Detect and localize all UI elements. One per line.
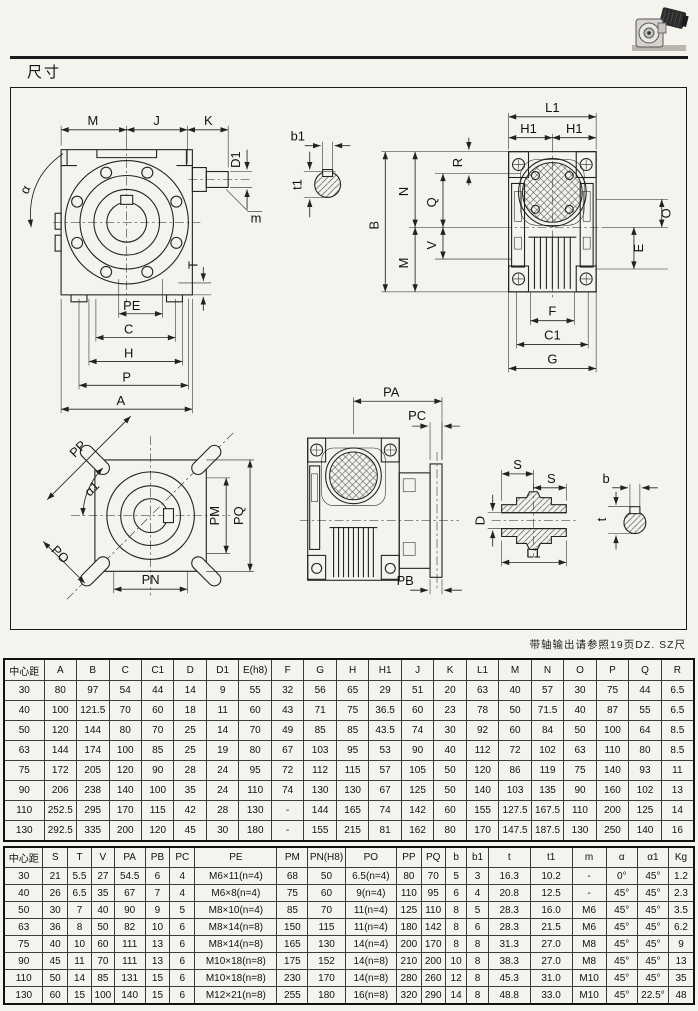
table-cell: 11(n=4) [345, 902, 397, 919]
table-cell: 130 [304, 781, 336, 801]
table-row: 3080975444149553256652951206340573075446… [4, 681, 694, 701]
table-cell: 255 [277, 987, 308, 1005]
table-cell: 130 [308, 936, 345, 953]
table-cell: 140 [596, 761, 628, 781]
table-cell: 14(n=4) [345, 936, 397, 953]
table-cell: 8.5 [661, 721, 694, 741]
table-cell: 81 [369, 821, 401, 842]
table-cell: 11 [67, 953, 91, 970]
row-header-cell: 130 [4, 821, 44, 842]
table-cell: 9 [206, 681, 238, 701]
header-cell: m [572, 847, 606, 868]
table-row: 40100121.5706018116043717536.56023785071… [4, 701, 694, 721]
table-cell: 95 [336, 741, 368, 761]
table-cell: 24 [206, 781, 238, 801]
table-cell: 150 [277, 919, 308, 936]
table-cell: 140 [109, 781, 141, 801]
table-cell: 45° [637, 902, 668, 919]
table-cell: 170 [421, 936, 445, 953]
table-row: 7517220512090282495721121155710550120861… [4, 761, 694, 781]
dim-label-g: G [547, 351, 557, 366]
header-cell: D1 [206, 659, 238, 681]
table-cell: 85 [277, 902, 308, 919]
table-cell: 6 [170, 970, 195, 987]
header-cell: G [304, 659, 336, 681]
table-cell: 44 [629, 681, 661, 701]
table-cell: 142 [421, 919, 445, 936]
table-cell: 75 [277, 885, 308, 902]
table-cell: 16 [661, 821, 694, 842]
table-cell: 36.5 [369, 701, 401, 721]
table-cell: 144 [304, 801, 336, 821]
table-cell: 40 [499, 681, 531, 701]
dim-label-d-bore: D [473, 516, 488, 525]
table-cell: 152 [308, 953, 345, 970]
table-cell: 14 [174, 681, 206, 701]
table-row: 40266.5356774M6×8(n=4)75609(n=4)11095642… [4, 885, 694, 902]
table-cell: 14 [445, 987, 466, 1005]
table-cell: 93 [629, 761, 661, 781]
header-cell: B [77, 659, 109, 681]
header-cell: N [531, 659, 563, 681]
table-cell: 21 [43, 868, 67, 885]
header-cell: H [336, 659, 368, 681]
table-cell: 23 [434, 701, 466, 721]
table-cell: 32 [271, 681, 303, 701]
table-cell: 6.2 [669, 919, 695, 936]
table-cell: 57 [531, 681, 563, 701]
row-header-cell: 90 [4, 781, 44, 801]
table-cell: 90 [114, 902, 145, 919]
table-cell: 292.5 [44, 821, 76, 842]
table-cell: 1.2 [669, 868, 695, 885]
header-cell: PB [145, 847, 169, 868]
table-cell: 42 [174, 801, 206, 821]
table-cell: 86 [499, 761, 531, 781]
page-title: 尺寸 [27, 61, 61, 82]
table-cell: 200 [596, 801, 628, 821]
table-cell: 13 [145, 953, 169, 970]
table-cell: 45° [606, 970, 637, 987]
table-cell: 200 [109, 821, 141, 842]
table-cell: 25 [174, 741, 206, 761]
table-cell: 100 [141, 781, 173, 801]
table-cell: 120 [109, 761, 141, 781]
table-cell: 8 [445, 936, 466, 953]
table-cell: 3 [467, 868, 488, 885]
table-cell: 50 [92, 919, 114, 936]
table-cell: 60 [239, 701, 271, 721]
dim-label-t-key: t [594, 517, 609, 521]
table-cell: 130 [336, 781, 368, 801]
table-cell: 127.5 [499, 801, 531, 821]
table-cell: 95 [239, 761, 271, 781]
table-cell: 74 [369, 801, 401, 821]
table-cell: 180 [397, 919, 421, 936]
table-cell: 43 [271, 701, 303, 721]
reference-note: 带轴输出请参照19页DZ. SZ尺 [530, 637, 686, 652]
table-cell: 120 [466, 761, 498, 781]
table-row: 110501485131156M10×18(n=8)23017014(n=8)2… [4, 970, 694, 987]
header-cell: D [174, 659, 206, 681]
table-cell: 0° [606, 868, 637, 885]
header-cell: PE [195, 847, 277, 868]
table-cell: 60 [499, 721, 531, 741]
table-cell: M6×8(n=4) [195, 885, 277, 902]
table-cell: 54 [109, 681, 141, 701]
table-cell: 121.5 [77, 701, 109, 721]
table-cell: 70 [141, 721, 173, 741]
table-cell: 75 [596, 681, 628, 701]
table-cell: 103 [304, 741, 336, 761]
table-cell: 44 [141, 681, 173, 701]
table-cell: 16(n=8) [345, 987, 397, 1005]
dim-label-h1-left: H1 [520, 121, 537, 136]
dimension-table-2-wrap: 中心距STVPAPBPCPEPMPN(H8)POPPPQbb1tt1mαα1Kg… [3, 846, 695, 1005]
table-cell: 40 [43, 936, 67, 953]
table-cell: 115 [141, 801, 173, 821]
table-cell: 10 [145, 919, 169, 936]
table-cell: M6 [572, 902, 606, 919]
table-cell: 24 [206, 761, 238, 781]
table-cell: 335 [77, 821, 109, 842]
dim-label-c1: C1 [544, 328, 561, 343]
table-cell: 70 [92, 953, 114, 970]
table-cell: 110 [239, 781, 271, 801]
table-cell: 5.5 [67, 868, 91, 885]
input-key-detail: b1 t1 [290, 129, 351, 218]
table-cell: 13 [661, 781, 694, 801]
table-cell: 28 [174, 761, 206, 781]
header-cell: PO [345, 847, 397, 868]
table-cell: 80 [434, 821, 466, 842]
table-cell: 45° [637, 953, 668, 970]
row-header-cell: 75 [4, 936, 43, 953]
dim-label-n: N [396, 187, 411, 196]
dim-label-r: R [450, 158, 465, 167]
table-cell: 14 [67, 970, 91, 987]
table-cell: 6 [445, 885, 466, 902]
table-cell: 80 [44, 681, 76, 701]
dim-label-pq: PQ [231, 506, 246, 525]
key-section-detail: b t [594, 471, 658, 550]
table-cell: 64 [629, 721, 661, 741]
table-cell: 250 [596, 821, 628, 842]
row-header-cell: 50 [4, 902, 43, 919]
table-cell: 320 [397, 987, 421, 1005]
table-cell: 90 [141, 761, 173, 781]
table-cell: 100 [92, 987, 114, 1005]
table-cell: 50 [564, 721, 596, 741]
table-cell: 9 [145, 902, 169, 919]
table-cell: 70 [239, 721, 271, 741]
table-cell: 45° [606, 885, 637, 902]
table-cell: 80 [397, 868, 421, 885]
table-cell: 238 [77, 781, 109, 801]
row-header-cell: 30 [4, 681, 44, 701]
table-cell: 144 [44, 741, 76, 761]
table-cell: 45 [43, 953, 67, 970]
dim-label-alpha: α [17, 182, 34, 196]
table-cell: 54.5 [114, 868, 145, 885]
table-row: 30215.52754.564M6×11(n=4)68506.5(n=4)807… [4, 868, 694, 885]
dim-label-k: K [204, 113, 213, 128]
table-cell: 95 [421, 885, 445, 902]
table-cell: 13 [145, 936, 169, 953]
table-cell: 35 [92, 885, 114, 902]
drawing-panel: M J K D1 m α T PE C H P A b1 t1 [10, 87, 687, 630]
table-cell: 12.5 [530, 885, 572, 902]
table-cell: 170 [109, 801, 141, 821]
header-cell: C [109, 659, 141, 681]
dim-label-h1-right: H1 [566, 121, 583, 136]
table-cell: 10 [445, 953, 466, 970]
table-cell: 45° [637, 868, 668, 885]
dim-label-v: V [424, 240, 439, 249]
header-cell: F [271, 659, 303, 681]
dim-label-pb: PB [397, 573, 414, 588]
table-cell: 100 [109, 741, 141, 761]
table-cell: 75 [564, 761, 596, 781]
table-cell: 119 [531, 761, 563, 781]
dim-label-t1: t1 [290, 179, 305, 190]
row-header-cell: 30 [4, 868, 43, 885]
table-cell: 10 [67, 936, 91, 953]
table-cell: 200 [421, 953, 445, 970]
table-cell: 140 [114, 987, 145, 1005]
dim-label-t-foot: T [185, 261, 200, 269]
table-cell: 67 [369, 781, 401, 801]
table-cell: 7 [67, 902, 91, 919]
table-cell: 36 [43, 919, 67, 936]
table-cell: 45° [606, 902, 637, 919]
dim-label-p: P [122, 369, 131, 384]
table-cell: M8 [572, 953, 606, 970]
row-header-cell: 40 [4, 885, 43, 902]
front-view: M J K D1 m α T PE C H P A [17, 113, 262, 413]
header-cell: A [44, 659, 76, 681]
table-cell: 6 [170, 919, 195, 936]
table-cell: 60 [92, 936, 114, 953]
dim-label-pa: PA [383, 384, 400, 399]
dim-label-m-thread: m [251, 210, 262, 225]
table-cell: 45° [606, 936, 637, 953]
table-row: 75401060111136M8×14(n=8)16513014(n=4)200… [4, 936, 694, 953]
header-cell: P [596, 659, 628, 681]
table-cell: 110 [564, 801, 596, 821]
table-cell: 7 [145, 885, 169, 902]
table-cell: 60 [141, 701, 173, 721]
table-cell: 50 [499, 701, 531, 721]
row-header-cell: 50 [4, 721, 44, 741]
table-cell: 100 [44, 701, 76, 721]
table-cell: 206 [44, 781, 76, 801]
table-cell: M10 [572, 970, 606, 987]
table-cell: 111 [114, 953, 145, 970]
table-cell: 50 [434, 781, 466, 801]
table-cell: 87 [596, 701, 628, 721]
table-cell: 14(n=8) [345, 970, 397, 987]
header-cell: 中心距 [4, 659, 44, 681]
table-cell: 35 [669, 970, 695, 987]
header-cell: b [445, 847, 466, 868]
row-header-cell: 110 [4, 801, 44, 821]
table-cell: M8×10(n=4) [195, 902, 277, 919]
catalog-page: { "header": { "section_title": "尺寸" }, "… [0, 0, 698, 1011]
table-cell: 55 [629, 701, 661, 721]
header-cell: L1 [466, 659, 498, 681]
table-cell: 8.5 [661, 741, 694, 761]
table-cell: 28 [206, 801, 238, 821]
dim-label-po: PO [48, 542, 72, 566]
table-cell: 67 [271, 741, 303, 761]
table-cell: 15 [67, 987, 91, 1005]
table-cell: 290 [421, 987, 445, 1005]
table-cell: 167.5 [531, 801, 563, 821]
table-cell: - [572, 868, 606, 885]
dim-label-j: J [153, 113, 159, 128]
table-cell: 165 [336, 801, 368, 821]
header-cell: α1 [637, 847, 668, 868]
table-cell: 16.0 [530, 902, 572, 919]
table-cell: 180 [308, 987, 345, 1005]
table-cell: M6×11(n=4) [195, 868, 277, 885]
dim-label-h: H [124, 346, 133, 361]
dim-label-c: C [124, 322, 133, 337]
technical-drawing: M J K D1 m α T PE C H P A b1 t1 [11, 88, 686, 629]
table-cell: 45° [606, 953, 637, 970]
table-cell: 115 [336, 761, 368, 781]
header-cell: PC [170, 847, 195, 868]
table-cell: 2.3 [669, 885, 695, 902]
table-cell: 5 [467, 902, 488, 919]
dim-label-l1-shaft: L1 [526, 545, 540, 560]
table-cell: 102 [629, 781, 661, 801]
header-cell: K [434, 659, 466, 681]
table-row: 6314417410085251980671039553904011272102… [4, 741, 694, 761]
dim-label-l1-rear: L1 [545, 100, 559, 115]
table-cell: 80 [629, 741, 661, 761]
table-cell: 40 [92, 902, 114, 919]
table-cell: 40 [434, 741, 466, 761]
dim-label-pe: PE [123, 298, 141, 313]
table-cell: 8 [467, 970, 488, 987]
table-cell: 97 [77, 681, 109, 701]
header-cell: 中心距 [4, 847, 43, 868]
table-cell: M8×14(n=8) [195, 919, 277, 936]
table-cell: 140 [629, 821, 661, 842]
table-cell: 63 [466, 681, 498, 701]
table-cell: 12 [445, 970, 466, 987]
table-cell: 6.5 [661, 681, 694, 701]
table-cell: 5 [170, 902, 195, 919]
table-cell: 72 [271, 761, 303, 781]
table-cell: 6.5(n=4) [345, 868, 397, 885]
header-cell: M [499, 659, 531, 681]
table-cell: 20.8 [488, 885, 530, 902]
table-cell: 6 [467, 919, 488, 936]
dim-label-d1: D1 [228, 151, 243, 168]
table-cell: 4 [170, 868, 195, 885]
table-cell: 45° [606, 919, 637, 936]
table-row: 50120144807025147049858543.5743092608450… [4, 721, 694, 741]
table-cell: 144 [77, 721, 109, 741]
table-cell: 111 [114, 936, 145, 953]
table-cell: 56 [304, 681, 336, 701]
header-cell: t1 [530, 847, 572, 868]
table-cell: 60 [308, 885, 345, 902]
table-cell: - [271, 801, 303, 821]
row-header-cell: 110 [4, 970, 43, 987]
table-cell: 125 [401, 781, 433, 801]
table-cell: 60 [401, 701, 433, 721]
header-cell: PA [114, 847, 145, 868]
header-cell: Kg [669, 847, 695, 868]
table-cell: 205 [77, 761, 109, 781]
table-cell: M10 [572, 987, 606, 1005]
table-cell: 174 [77, 741, 109, 761]
table-cell: 28.3 [488, 902, 530, 919]
table-cell: 6.5 [67, 885, 91, 902]
table-cell: 30 [206, 821, 238, 842]
dim-label-b-key: b [602, 471, 609, 486]
table-cell: M10×18(n=8) [195, 953, 277, 970]
header-cell: PM [277, 847, 308, 868]
table-cell: 70 [308, 902, 345, 919]
table-cell: 29 [369, 681, 401, 701]
row-header-cell: 130 [4, 987, 43, 1005]
table-cell: 8 [467, 953, 488, 970]
table-cell: 20 [434, 681, 466, 701]
header-cell: PN(H8) [308, 847, 345, 868]
table-cell: 112 [466, 741, 498, 761]
table-cell: 27 [92, 868, 114, 885]
table-cell: 85 [304, 721, 336, 741]
table-cell: 4 [467, 885, 488, 902]
table-cell: 100 [596, 721, 628, 741]
table-cell: 125 [397, 902, 421, 919]
table-cell: 60 [434, 801, 466, 821]
table-cell: 187.5 [531, 821, 563, 842]
table-cell: 6 [170, 936, 195, 953]
header-cell: S [43, 847, 67, 868]
table-cell: 90 [564, 781, 596, 801]
flange-view: PP α1 PO PM PQ PN [43, 416, 254, 599]
table-cell: 57 [369, 761, 401, 781]
table-cell: 4 [170, 885, 195, 902]
table-cell: 105 [401, 761, 433, 781]
table-row: 110252.52951701154228130-144165741426015… [4, 801, 694, 821]
table-cell: 72 [499, 741, 531, 761]
header-cell: R [661, 659, 694, 681]
table-cell: 50 [434, 761, 466, 781]
header-cell: PP [397, 847, 421, 868]
table-cell: M10×18(n=8) [195, 970, 277, 987]
dim-label-o: O [659, 208, 674, 218]
table-cell: 67 [114, 885, 145, 902]
table-cell: 84 [531, 721, 563, 741]
table-cell: M8 [572, 936, 606, 953]
product-photo [630, 5, 690, 55]
table-cell: 11(n=4) [345, 919, 397, 936]
table-cell: 50 [308, 868, 345, 885]
table-cell: 103 [499, 781, 531, 801]
table-row: 633685082106M8×14(n=8)15011511(n=4)18014… [4, 919, 694, 936]
table-cell: 16.3 [488, 868, 530, 885]
table-cell: 33.0 [530, 987, 572, 1005]
table-cell: 180 [239, 821, 271, 842]
table-cell: 11 [206, 701, 238, 721]
